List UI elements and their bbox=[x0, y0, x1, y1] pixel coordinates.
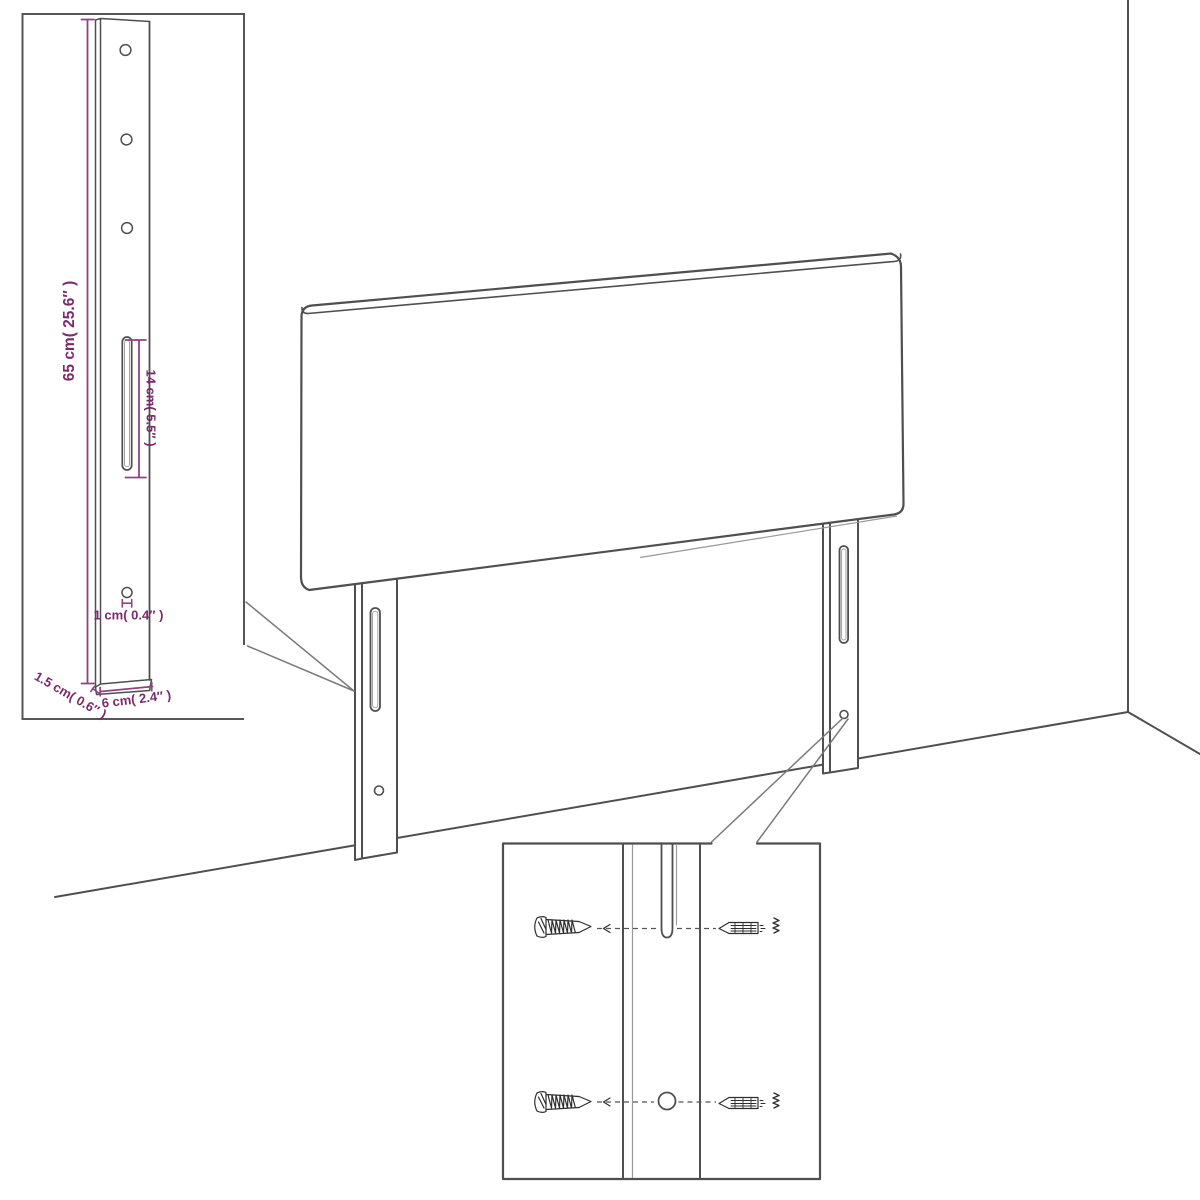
panel-outline bbox=[301, 254, 904, 591]
callout-left-upper bbox=[246, 602, 354, 691]
inset-slot bbox=[122, 337, 131, 470]
diagram-canvas: 65 cm( 25.6″ ) 14 cm( 5.5″ ) 1 cm( 0.4″ … bbox=[0, 0, 1200, 1200]
right-leg bbox=[823, 512, 858, 774]
callout-left-lower bbox=[248, 646, 355, 691]
slot-dimension-line bbox=[126, 340, 147, 478]
inset-hole-1 bbox=[120, 45, 131, 56]
leg-detail-inset: 65 cm( 25.6″ ) 14 cm( 5.5″ ) 1 cm( 0.4″ … bbox=[23, 14, 245, 722]
floor-right-line bbox=[1128, 712, 1200, 754]
left-leg bbox=[355, 568, 397, 860]
inset-hole-3 bbox=[122, 223, 133, 234]
hole-dimension-bracket bbox=[122, 600, 131, 608]
headboard-panel bbox=[301, 254, 904, 591]
inset-small-hole bbox=[122, 588, 132, 598]
right-leg-body bbox=[823, 512, 858, 774]
callout-lines bbox=[246, 602, 848, 842]
label-leg-height: 65 cm( 25.6″ ) bbox=[61, 281, 78, 381]
height-dimension-line bbox=[82, 20, 95, 684]
callout-right-lower bbox=[757, 719, 848, 842]
headboard-dimension-diagram: 65 cm( 25.6″ ) 14 cm( 5.5″ ) 1 cm( 0.4″ … bbox=[0, 0, 1200, 1200]
dimension-lines bbox=[82, 20, 153, 696]
mounting-detail-inset bbox=[503, 844, 820, 1180]
label-hole-size: 1 cm( 0.4″ ) bbox=[94, 607, 164, 622]
label-slot-length: 14 cm( 5.5″ ) bbox=[144, 369, 159, 446]
inset-hole-2 bbox=[121, 134, 132, 145]
inset-leg-drawing bbox=[96, 19, 152, 695]
